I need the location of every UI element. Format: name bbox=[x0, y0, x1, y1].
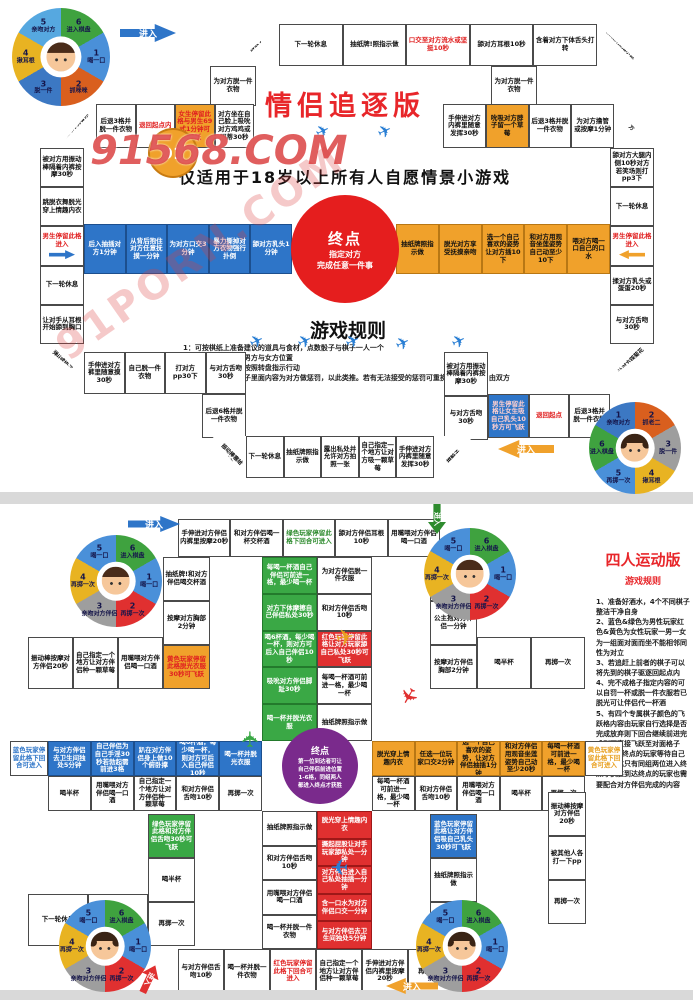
enter-arrow-right: 进入 bbox=[128, 516, 180, 532]
board-cell: 选一个自己喜欢的姿势让对方插10下 bbox=[482, 224, 525, 274]
enter-label: 进入 bbox=[139, 27, 157, 40]
finish-subtitle: 指定对方 完成任意一件事 bbox=[317, 249, 373, 271]
board2-four-player: 6进入棋盘1喝一口2再掷一次3亲吻对方伴侣4再掷一次5喝一口 进入 6进入棋盘1… bbox=[0, 504, 693, 996]
board-cell: 男生停留此格让女生吸自己乳头10秒方可飞跃 bbox=[488, 394, 529, 438]
board2-blue-row: 与对方伴侣去卫生间独处5分钟自己伴侣为自己手淫30秒若勃起需前进3格趴在对方伴侣… bbox=[48, 741, 262, 776]
board-cell: 口交至对方流水或坚挺10秒 bbox=[406, 24, 470, 66]
board-cell: 抽纸牌照指示做 bbox=[396, 224, 439, 274]
board-cell: 与对方舌吻30秒 bbox=[610, 305, 654, 344]
board-cell: 手伸进对方伴侣内裤里按摩20秒 bbox=[178, 519, 230, 557]
board-cell: 黄色玩家停留此格下回合可进入 bbox=[585, 741, 623, 776]
plane-icon bbox=[393, 682, 421, 709]
board-cell: 振动棒按摩对方伴侣20秒 bbox=[28, 637, 73, 689]
board-cell: 手伸进对方内裤里随意发挥30秒 bbox=[443, 104, 486, 148]
board-cell: 按摩对方伴侣胸部2分钟 bbox=[430, 645, 477, 689]
board1-bottom-outer-row: 振动棒塞给对方下一轮休息抽纸牌照指示做露出私处并允许对方拍照一张自己指定一个地方… bbox=[212, 436, 474, 478]
enter-direction-arrow-icon bbox=[49, 250, 75, 259]
enter-label: 进入 bbox=[432, 512, 442, 526]
board-cell: 任选一位玩家口交2分钟 bbox=[415, 741, 458, 776]
wheel-segment-label: 2再掷一次 bbox=[104, 966, 140, 983]
wheel-segment-label: 6进入棋盘 bbox=[461, 909, 497, 926]
board-cell: 红色玩家停留此格下回合可进入 bbox=[270, 949, 316, 994]
wheel-segment-label: 5喝一口 bbox=[70, 909, 106, 926]
board-cell: 为对方伴侣脱一件衣服 bbox=[317, 557, 372, 594]
board1-inner-top-right-row: 手伸进对方内裤里随意发挥30秒吮吸对方脖子留一个草莓后退3格并脱一件衣物为对方撸… bbox=[443, 104, 652, 148]
board-cell: 舔对方耳根10秒 bbox=[470, 24, 534, 66]
board-cell: 自己指定一个地方让对方伴侣种一颗草莓 bbox=[134, 776, 177, 811]
board-game-sheet: 91 91568.COM 91PORN.COM 6进入棋盘1喝一口2抓咪咪3脱一… bbox=[0, 0, 693, 1000]
board-cell: 含一口水为对方伴侣口交一分钟 bbox=[317, 894, 372, 922]
board-cell: 男生停留此格进入 bbox=[610, 226, 654, 265]
wheel-segment-label: 4揪耳根 bbox=[8, 49, 44, 66]
board-cell: 绿色玩家停留此格和对方伴侣舌吻30秒可飞跃 bbox=[148, 814, 195, 858]
enter-label: 进入 bbox=[145, 518, 163, 531]
board2-top-edge-row: 手伸进对方伴侣内裤里按摩20秒和对方伴侣喝一杯交杯酒绿色玩家停留此格下回合可进入… bbox=[178, 519, 440, 557]
board-cell: 每喝一杯酒可前进一格，最少喝一杯 bbox=[372, 776, 415, 811]
finish-title: 终点 bbox=[311, 744, 329, 757]
board-cell: 和对方伴侣舌吻10秒 bbox=[176, 776, 219, 811]
board-cell: 每喝一杯酒可前进一格，最少喝一杯 bbox=[317, 667, 372, 704]
board-cell: 抽纸牌照指示做 bbox=[430, 858, 477, 902]
board-cell: 掷骰子 bbox=[434, 436, 474, 478]
enter-direction-arrow-icon bbox=[619, 250, 645, 259]
board-cell: 喝6杯酒，每少喝一杯，则对方可后入自己伴侣10秒 bbox=[262, 631, 317, 668]
wheel-segment-label: 6进入棋盘 bbox=[104, 909, 140, 926]
board-cell: 被对方用振动棒隔着内裤按摩30秒 bbox=[40, 148, 84, 187]
board1-below-left-cell: 后退6格并脱一件衣物 bbox=[202, 394, 246, 438]
board-cell: 抽纸牌照指示做 bbox=[284, 436, 322, 478]
board-cell: 含着对方下体舌头打转 bbox=[533, 24, 597, 66]
board-cell: 选一个自己喜欢的姿势，让对方伴侣抽插1分钟 bbox=[457, 741, 500, 776]
board2-right-entry-cell: 黄色玩家停留此格下回合可进入 bbox=[585, 741, 623, 776]
finish-title: 终点 bbox=[328, 228, 362, 249]
board2-bottom-white-column: 抽纸牌照指示做和对方伴侣舌吻10秒用嘴喂对方伴侣喝一口酒喝一杯并脱一件衣物 bbox=[262, 811, 317, 949]
board-cell: 下一轮休息 bbox=[40, 266, 84, 305]
wheel-segment-label: 1亲吻对方 bbox=[600, 411, 636, 428]
board1-step-right: 为对方脱一件衣物 bbox=[491, 66, 537, 106]
board1-bottom-inner-left-row: 手伸进对方裤里随意摸30秒自己脱一件衣物打对方pp30下与对方舌吻30秒 bbox=[84, 352, 246, 394]
board2-bl-corner-col: 绿色玩家停留此格和对方伴侣舌吻30秒可飞跃喝半杯再掷一次 bbox=[148, 814, 195, 946]
avatar-male bbox=[451, 555, 490, 594]
board-cell: 每喝一杯酒自己伴侣可前进一格，最少喝一杯 bbox=[262, 557, 317, 594]
plane-icon bbox=[241, 730, 263, 748]
wheel-segment-label: 3亲吻对方伴侣 bbox=[435, 594, 471, 611]
board1-orange-row: 抽纸牌照指示做脱光对方享受抚摸亲吻选一个自己喜欢的姿势让对方插10下和对方用观音… bbox=[396, 224, 610, 274]
wheel-segment-label: 1喝一口 bbox=[120, 938, 156, 955]
wheel-segment-label: 5喝一口 bbox=[435, 537, 471, 554]
wheel-segment-label: 2再掷一次 bbox=[469, 594, 505, 611]
wheel-segment-label: 6进入棋盘 bbox=[61, 18, 97, 35]
board-cell: 为对方脱一件衣物 bbox=[210, 66, 256, 106]
board-cell: 让对方踩菊花 bbox=[610, 344, 654, 378]
board-cell: 被对方用振动棒隔着内裤按摩30秒 bbox=[444, 352, 488, 396]
enter-arrow-left: 进入 bbox=[498, 440, 554, 458]
wheel-segment-label: 1喝一口 bbox=[78, 49, 114, 66]
board-cell: 吮吸对方脖子留一个草莓 bbox=[486, 104, 529, 148]
board-cell: 脱光对方享受抚摸亲吻 bbox=[439, 224, 482, 274]
board-cell: 和对方伴侣喝一杯交杯酒 bbox=[230, 519, 282, 557]
wheel-segment-label: 6进入棋盘 bbox=[115, 544, 151, 561]
board-cell: 抽纸牌!和对方伴侣喝交杯酒 bbox=[163, 557, 210, 601]
wheel-segment-label: 1喝一口 bbox=[485, 566, 521, 583]
board1-title: 情侣追逐版 bbox=[235, 84, 455, 123]
board-cell: 喂对方喝一口自己的口水 bbox=[567, 224, 610, 274]
board-cell: 与对方舌吻30秒 bbox=[206, 352, 247, 394]
board-cell: 脱光穿上情趣内衣 bbox=[317, 811, 372, 839]
wheel-segment-label: 1喝一口 bbox=[131, 573, 167, 590]
plane-icon bbox=[375, 122, 395, 143]
board-cell: 自己指定一个地方让对方吸一颗草莓 bbox=[359, 436, 397, 478]
board-cell: 和对方伴侣舌吻10秒 bbox=[415, 776, 458, 811]
board-cell: 自己伴侣为自己手淫30秒若勃起需前进3格 bbox=[91, 741, 134, 776]
board-cell: 下一轮休息 bbox=[279, 24, 343, 66]
board-cell: 与对方舌吻30秒 bbox=[444, 396, 488, 440]
wheel-segment-label: 4再掷一次 bbox=[411, 938, 447, 955]
finish-subtitle: 第一位到达者可让 自己伴侣前进位置 1-6格，同组两人 都进入终点才获胜 bbox=[298, 757, 342, 789]
board-cell: 与对方伴侣去卫生间独处5分钟 bbox=[48, 741, 91, 776]
enter-label: 进入 bbox=[517, 443, 535, 456]
spinner-wheel-female-1[interactable]: 6进入棋盘1喝一口2再掷一次3亲吻对方伴侣4再掷一次5喝一口 bbox=[59, 900, 151, 992]
board1-right-column: 舔对方大腿内侧10秒对方若笑场则打pp3下下一轮休息男生停留此格进入揉对方乳头或… bbox=[610, 148, 654, 378]
board2-tl-corner-col: 抽纸牌!和对方伴侣喝交杯酒按摩对方胸部2分钟黄色玩家停留此格脱光衣服30秒可飞跃 bbox=[163, 557, 210, 689]
wheel-segment-label: 1喝一口 bbox=[477, 938, 513, 955]
enter-arrow-right: 进入 bbox=[120, 24, 176, 42]
board-cell: 振动棒按摩对方伴侣20秒 bbox=[548, 792, 586, 836]
wheel-segment-label: 2抓咪咪 bbox=[61, 79, 97, 96]
board-cell: 与对方伴侣去卫生间独处5分钟 bbox=[317, 921, 372, 949]
board1-right-stack: 被对方用振动棒隔着内裤按摩30秒与对方舌吻30秒 bbox=[444, 352, 488, 440]
wheel-segment-label: 5亲吻对方 bbox=[25, 18, 61, 35]
spinner-wheel-male-2[interactable]: 6进入棋盘1喝一口2再掷一次3亲吻对方伴侣4再掷一次5喝一口 bbox=[424, 528, 516, 620]
finish-circle: 终点 第一位到达者可让 自己伴侣前进位置 1-6格，同组两人 都进入终点才获胜 bbox=[282, 728, 358, 804]
board1-outer-top-row: 掷骰子下一轮休息抽纸牌!照指示做口交至对方流水或坚挺10秒舔对方耳根10秒含着对… bbox=[233, 24, 643, 66]
spinner-wheel-female-2[interactable]: 6进入棋盘1喝一口2再掷一次3亲吻对方伴侣4再掷一次5喝一口 bbox=[416, 900, 508, 992]
wheel-segment-label: 4再掷一次 bbox=[65, 573, 101, 590]
plane-icon bbox=[334, 627, 356, 652]
wheel-segment-label: 3脱一件 bbox=[25, 79, 61, 96]
wheel-segment-label: 6进入棋盘 bbox=[469, 537, 505, 554]
plane-icon bbox=[330, 854, 348, 876]
board-cell: 喝半杯 bbox=[48, 776, 91, 811]
board-cell: 手伸进对方内裤里随意发挥30秒 bbox=[396, 436, 434, 478]
board-cell: 趴在对方伴侣身上做10个俯卧撑 bbox=[134, 741, 177, 776]
board-cell: 用嘴喂对方伴侣喝一口酒 bbox=[118, 637, 163, 689]
board-cell: 对方下体摩擦自己伴侣私处30秒 bbox=[262, 594, 317, 631]
board-cell: 黄色玩家停留此格脱光衣服30秒可飞跃 bbox=[163, 645, 210, 689]
board-cell: 再掷一次 bbox=[219, 776, 262, 811]
rule-line: 2、蓝色&绿色为男性玩家红色&黄色为女性玩家一男一女为一组面对面而坐不能相邻同性… bbox=[596, 617, 690, 658]
wheel-segment-label: 6进入棋盘 bbox=[584, 440, 620, 457]
finish-circle: 终点 指定对方 完成任意一件事 bbox=[291, 195, 399, 303]
rule-line: 3、若追赶上前者的棋子可以将先到的棋子驱逐回起点内 bbox=[596, 658, 690, 678]
board-cell: 每喝一杯酒可前进一格，最少喝一杯 bbox=[542, 741, 585, 776]
wheel-segment-label: 4再掷一次 bbox=[419, 566, 455, 583]
board-cell: 揉对方乳头或蛋蛋20秒 bbox=[610, 266, 654, 305]
board2-red-column: 脱光穿上情趣内衣撅起屁股让对手玩家舔私处一分钟对方伴侣进入自己私处抽插一分钟含一… bbox=[317, 811, 372, 949]
board-cell: 按摩对方胸部2分钟 bbox=[163, 601, 210, 645]
board1-couple-chase: 91 91568.COM 91PORN.COM 6进入棋盘1喝一口2抓咪咪3脱一… bbox=[0, 0, 693, 492]
wheel-segment-label: 2再掷一次 bbox=[115, 601, 151, 618]
board2-tr-corner-row: 喝半杯再掷一次 bbox=[477, 637, 585, 689]
board2-left-white-row: 喝半杯用嘴喂对方伴侣喝一口酒自己指定一个地方让对方伴侣种一颗草莓和对方伴侣舌吻1… bbox=[48, 776, 262, 811]
board-cell: 用嘴喂对方伴侣喝一口酒 bbox=[457, 776, 500, 811]
board-cell: 自己指定一个地方让对方伴侣种一颗草莓 bbox=[316, 949, 362, 994]
board2-title: 四人运动版 bbox=[596, 549, 690, 570]
board-cell: 自己脱一件衣物 bbox=[125, 352, 166, 394]
board-cell: 再掷一次 bbox=[548, 880, 586, 924]
wheel-segment-label: 4揪耳根 bbox=[634, 468, 670, 485]
wheel-segment-label: 2抓老二 bbox=[634, 411, 670, 428]
board-cell: 和对方用观音坐莲姿势自己动至少10下 bbox=[524, 224, 567, 274]
board-cell: 吸吮对方伴侣脚趾30秒 bbox=[262, 667, 317, 704]
avatar-male bbox=[40, 36, 81, 77]
board-cell: 下一轮休息 bbox=[246, 436, 284, 478]
board-cell: 喝6杯酒，每少喝一杯，则对方可后入自己伴侣10秒 bbox=[176, 741, 219, 776]
board-cell: 抽纸牌!照指示做 bbox=[343, 24, 407, 66]
board-cell: 和对方伴侣舌吻10秒 bbox=[262, 846, 317, 881]
board-cell: 振动棒塞给对方 bbox=[212, 436, 246, 478]
board-cell: 后入抽插对方1分钟 bbox=[84, 224, 126, 274]
board-cell: 舔对方伴侣耳根10秒 bbox=[335, 519, 387, 557]
wheel-segment-label: 5喝一口 bbox=[81, 544, 117, 561]
board-cell: 喝一杯并脱一件衣物 bbox=[262, 915, 317, 950]
spinner-wheel-male-1[interactable]: 6进入棋盘1喝一口2再掷一次3亲吻对方伴侣4再掷一次5喝一口 bbox=[70, 535, 162, 627]
board-cell: 后退3格并脱一件衣物 bbox=[529, 104, 572, 148]
board1-step-left: 为对方脱一件衣物 bbox=[210, 66, 256, 106]
rule-line: 4、完不成格子指定内容的可以自罚一杯或脱一件衣服若已脱光可让伴侣代一杯酒 bbox=[596, 678, 690, 708]
board2-orange-row: 脱光穿上情趣内衣任选一位玩家口交2分钟选一个自己喜欢的姿势，让对方伴侣抽插1分钟… bbox=[372, 741, 585, 776]
board-cell: 用嘴喂对方伴侣喝一口酒 bbox=[262, 880, 317, 915]
wheel-segment-label: 3亲吻对方伴侣 bbox=[70, 966, 106, 983]
board-cell: 舔对方大腿内侧10秒对方若笑场则打pp3下 bbox=[610, 148, 654, 187]
board-cell: 露出私处并允许对方拍照一张 bbox=[321, 436, 359, 478]
wheel-segment-label: 2再掷一次 bbox=[461, 966, 497, 983]
enter-label: 进入 bbox=[142, 971, 157, 988]
avatar-female bbox=[443, 927, 482, 966]
spinner-wheel-male[interactable]: 6进入棋盘1喝一口2抓咪咪3脱一件4揪耳根5亲吻对方 bbox=[12, 8, 110, 106]
wheel-segment-label: 5再掷一次 bbox=[600, 468, 636, 485]
board-cell: 再掷一次 bbox=[148, 902, 195, 946]
spinner-wheel-female[interactable]: 2抓老二3脱一件4揪耳根5再掷一次6进入棋盘1亲吻对方 bbox=[589, 402, 681, 494]
board2-rules-subtitle: 游戏规则 bbox=[596, 574, 690, 587]
board-cell: 抽纸牌按指示做 bbox=[597, 24, 643, 66]
board-cell: 被其他人各打一下pp bbox=[548, 836, 586, 880]
avatar-female bbox=[86, 927, 125, 966]
wheel-segment-label: 3亲吻对方伴侣 bbox=[427, 966, 463, 983]
board-cell: 再掷一次 bbox=[531, 637, 585, 689]
board-cell: 与对方伴侣舌吻10秒 bbox=[178, 949, 224, 994]
board2-green-column: 每喝一杯酒自己伴侣可前进一格，最少喝一杯对方下体摩擦自己伴侣私处30秒喝6杯酒，… bbox=[262, 557, 317, 741]
board-cell: 喝半杯 bbox=[500, 776, 543, 811]
board-cell: 退回起点 bbox=[529, 394, 570, 438]
board-cell: 打对方pp30下 bbox=[165, 352, 206, 394]
wheel-segment-label: 4再掷一次 bbox=[54, 938, 90, 955]
board2-left-entry-cell: 蓝色玩家停留此格下回合可进入 bbox=[10, 741, 48, 776]
wheel-segment-label: 3亲吻对方伴侣 bbox=[81, 601, 117, 618]
board-cell: 喝半杯 bbox=[477, 637, 531, 689]
board-divider bbox=[0, 492, 693, 504]
board2-right-edge-col: 振动棒按摩对方伴侣20秒被其他人各打一下pp再掷一次 bbox=[548, 792, 586, 924]
rule-line: 1、准备好酒水，4个不同棋子整洁干净自身 bbox=[596, 597, 690, 617]
board-cell: 抽纸牌照指示做 bbox=[262, 811, 317, 846]
board-cell: 蓝色玩家停留此格下回合可进入 bbox=[10, 741, 48, 776]
board-cell: 和对方伴侣用观音坐莲姿势自己动至少20秒 bbox=[500, 741, 543, 776]
avatar-male bbox=[97, 562, 136, 601]
board-cell: 用嘴喂对方伴侣喝一口酒 bbox=[91, 776, 134, 811]
board-cell: 掷骰子 bbox=[233, 24, 279, 66]
board-cell: 跳脱衣舞脱光穿上情趣内衣 bbox=[40, 187, 84, 226]
board-cell: 喝半杯 bbox=[148, 858, 195, 902]
board-cell: 蓝色玩家停留此格让对方伴侣吸自己乳头30秒可飞跃 bbox=[430, 814, 477, 858]
board-cell: 绿色玩家停留此格下回合可进入 bbox=[283, 519, 335, 557]
board-cell: 自己指定一个地方让对方伴侣种一颗草莓 bbox=[73, 637, 118, 689]
board-cell: 脱光穿上情趣内衣 bbox=[372, 741, 415, 776]
board-cell: 男生停留此格进入 bbox=[40, 226, 84, 265]
avatar-female bbox=[616, 429, 655, 468]
wheel-segment-label: 3脱一件 bbox=[650, 440, 686, 457]
board2-tl-corner-row: 振动棒按摩对方伴侣20秒自己指定一个地方让对方伴侣种一颗草莓用嘴喂对方伴侣喝一口… bbox=[28, 637, 163, 689]
board-cell: 下一轮休息 bbox=[610, 187, 654, 226]
wheel-segment-label: 5喝一口 bbox=[427, 909, 463, 926]
board-cell: 振动棒塞给对方 bbox=[614, 104, 652, 148]
board-cell: 为对方撸管或按摩1分钟 bbox=[571, 104, 614, 148]
board-cell: 喝一杯并脱一件衣物 bbox=[224, 949, 270, 994]
board-cell: 后退6格并脱一件衣物 bbox=[202, 394, 246, 438]
board-cell: 为对方脱一件衣物 bbox=[491, 66, 537, 106]
